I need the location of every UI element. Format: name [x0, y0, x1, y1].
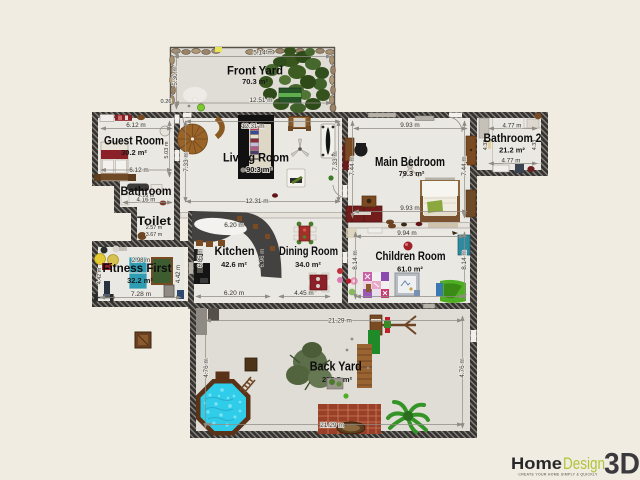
svg-text:Back Yard: Back Yard	[310, 360, 362, 374]
svg-text:7.44 m: 7.44 m	[461, 156, 468, 176]
svg-text:21.29 m: 21.29 m	[328, 318, 352, 325]
svg-text:6.20 m: 6.20 m	[224, 290, 245, 297]
svg-text:Design: Design	[563, 455, 605, 473]
svg-text:3.67 m: 3.67 m	[146, 232, 163, 238]
svg-text:79.3 m²: 79.3 m²	[399, 169, 425, 178]
svg-text:9.93 m: 9.93 m	[400, 205, 420, 212]
svg-text:12.31 m: 12.31 m	[245, 198, 268, 205]
svg-text:Home: Home	[511, 455, 562, 473]
svg-text:12.51 m: 12.51 m	[249, 97, 272, 104]
svg-text:Fitness First: Fitness First	[103, 261, 172, 275]
svg-text:7.33 m: 7.33 m	[183, 152, 190, 172]
svg-text:32.2 m²: 32.2 m²	[127, 276, 153, 285]
svg-text:4.76 m: 4.76 m	[459, 358, 466, 378]
svg-text:Kitchen: Kitchen	[215, 244, 255, 258]
svg-text:6.20 m: 6.20 m	[224, 222, 244, 229]
svg-text:3D: 3D	[604, 448, 640, 480]
svg-text:8.14 m: 8.14 m	[352, 250, 359, 270]
svg-text:7.33 m: 7.33 m	[332, 151, 339, 171]
svg-text:6.85 m: 6.85 m	[197, 249, 204, 268]
svg-text:21.2 m²: 21.2 m²	[499, 146, 525, 155]
svg-text:7.44 m: 7.44 m	[349, 156, 356, 176]
svg-text:4.77 m: 4.77 m	[502, 158, 521, 165]
svg-text:4.76 m: 4.76 m	[203, 358, 210, 378]
svg-text:61.0 m²: 61.0 m²	[397, 265, 423, 274]
svg-text:5.30 m: 5.30 m	[172, 66, 179, 86]
svg-text:4.42 m: 4.42 m	[176, 265, 182, 283]
svg-text:CREATE YOUR HOME SIMPLY & QUIC: CREATE YOUR HOME SIMPLY & QUICKLY	[518, 473, 598, 477]
svg-text:9.93 m: 9.93 m	[400, 122, 420, 129]
svg-text:Bathroom 2: Bathroom 2	[484, 131, 542, 145]
svg-text:7.28 m: 7.28 m	[131, 291, 152, 298]
svg-text:4.77 m: 4.77 m	[503, 123, 522, 130]
svg-text:5.03 m: 5.03 m	[164, 141, 170, 158]
svg-text:Guest Room: Guest Room	[104, 134, 164, 148]
svg-text:Main Bedroom: Main Bedroom	[375, 155, 445, 169]
svg-text:9.94 m: 9.94 m	[397, 230, 417, 237]
svg-text:Dining Room: Dining Room	[279, 244, 338, 258]
svg-text:Living Room: Living Room	[223, 151, 289, 165]
svg-text:42.6 m²: 42.6 m²	[221, 260, 247, 269]
svg-text:5.14 m: 5.14 m	[253, 50, 273, 57]
svg-text:Children Room: Children Room	[376, 249, 446, 263]
svg-text:70.3 m²: 70.3 m²	[242, 77, 268, 86]
svg-text:34.0 m²: 34.0 m²	[295, 260, 321, 269]
svg-text:Bathroom: Bathroom	[121, 186, 172, 198]
svg-text:21.29 m: 21.29 m	[320, 422, 344, 429]
svg-text:6.12 m: 6.12 m	[129, 167, 149, 174]
svg-text:30.2 m²: 30.2 m²	[121, 148, 147, 157]
svg-text:Front Yard: Front Yard	[227, 64, 283, 78]
svg-text:90.3 m²: 90.3 m²	[246, 165, 272, 174]
svg-text:12.31 m: 12.31 m	[241, 123, 264, 130]
svg-text:6.96 m: 6.96 m	[259, 249, 266, 268]
svg-text:6.12 m: 6.12 m	[126, 122, 146, 129]
svg-text:8.14 m: 8.14 m	[461, 250, 468, 270]
svg-text:4.45 m: 4.45 m	[294, 290, 314, 297]
svg-text:Toilet: Toilet	[137, 216, 171, 228]
svg-text:0.26: 0.26	[161, 99, 172, 105]
